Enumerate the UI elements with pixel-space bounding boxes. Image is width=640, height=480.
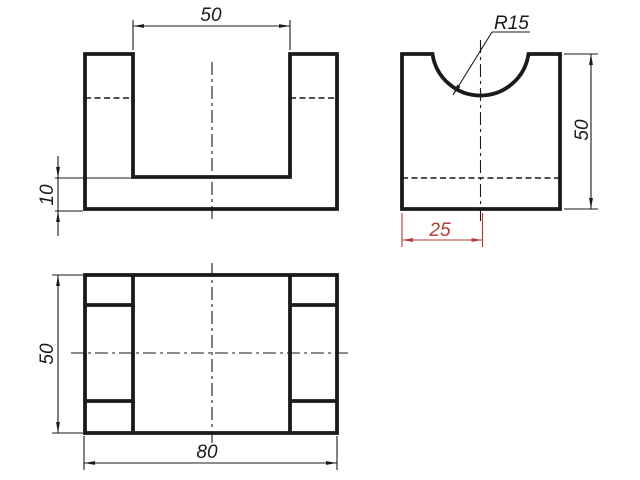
dimension-arrow-icon: [589, 54, 593, 65]
side-dim-notch-center-offset: 25: [402, 213, 483, 247]
front-view: 50 10: [37, 5, 337, 236]
dim-label-depth: 50: [37, 343, 58, 365]
side-dim-height: 50: [564, 54, 598, 209]
dimension-arrow-icon: [56, 422, 60, 433]
dim-label-slot-width: 50: [200, 5, 222, 26]
plan-dim-width: 80: [84, 436, 337, 470]
dimension-arrow-icon: [133, 24, 144, 28]
plan-dim-depth: 50: [37, 275, 83, 433]
front-view-outline: [85, 54, 337, 209]
plan-view-outline: [85, 275, 337, 433]
dimension-arrow-icon: [84, 461, 95, 465]
side-view: R15 50 25: [402, 13, 598, 247]
side-dim-notch-radius: R15: [453, 13, 530, 95]
dim-label-notch-center-offset: 25: [428, 220, 451, 241]
drawing-canvas: 50 10 R15 50: [0, 0, 640, 480]
dimension-arrow-icon: [326, 461, 337, 465]
front-dim-slot-width: 50: [133, 5, 290, 50]
dimension-arrow-icon: [56, 167, 60, 178]
leader-line: [453, 32, 492, 95]
dimension-arrow-icon: [279, 24, 290, 28]
technical-drawing: 50 10 R15 50: [0, 0, 640, 480]
plan-view: 50 80: [37, 263, 352, 470]
dimension-arrow-icon: [472, 238, 483, 242]
dimension-arrow-icon: [56, 211, 60, 222]
dim-label-height: 50: [572, 119, 593, 141]
dimension-arrow-icon: [56, 275, 60, 286]
dim-label-width: 80: [196, 442, 218, 463]
dimension-arrow-icon: [589, 198, 593, 209]
dim-label-notch-radius: R15: [494, 13, 529, 34]
dimension-arrow-icon: [402, 238, 413, 242]
dim-label-base-thickness: 10: [37, 184, 58, 206]
